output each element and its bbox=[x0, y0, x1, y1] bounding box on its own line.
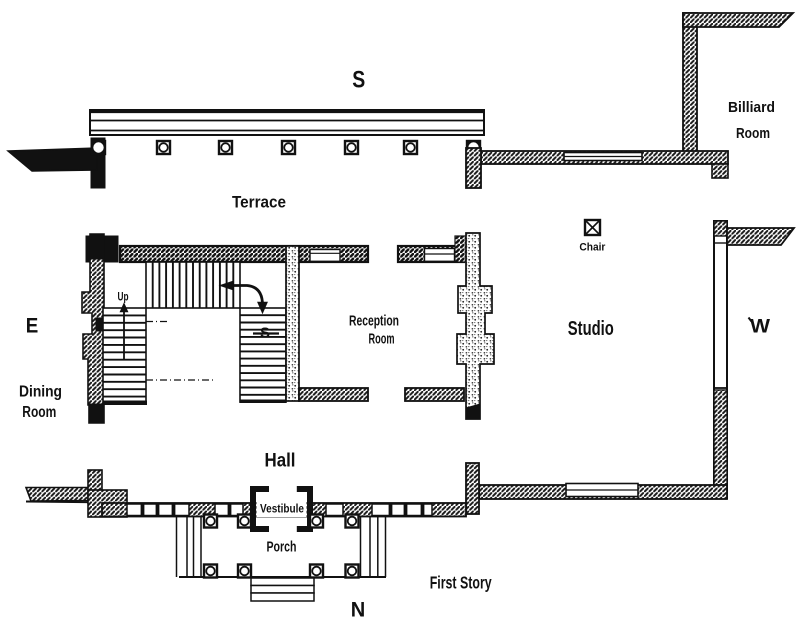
svg-text:Studio: Studio bbox=[568, 318, 614, 340]
svg-text:N: N bbox=[351, 598, 366, 622]
svg-text:Up: Up bbox=[118, 290, 129, 304]
svg-text:Reception: Reception bbox=[349, 313, 399, 330]
svg-text:Hall: Hall bbox=[265, 451, 296, 472]
svg-text:Dining: Dining bbox=[19, 384, 62, 401]
svg-text:Vestibule: Vestibule bbox=[260, 504, 304, 516]
svg-text:Terrace: Terrace bbox=[232, 193, 286, 212]
svg-text:Chair: Chair bbox=[579, 242, 606, 254]
svg-text:Billiard: Billiard bbox=[728, 99, 775, 116]
svg-text:Room: Room bbox=[22, 404, 56, 421]
svg-text:Room: Room bbox=[736, 125, 770, 142]
svg-text:Room: Room bbox=[369, 331, 395, 348]
svg-text:S: S bbox=[352, 67, 365, 94]
svg-text:Porch: Porch bbox=[267, 539, 297, 556]
svg-text:W: W bbox=[750, 316, 771, 338]
svg-text:E: E bbox=[26, 315, 39, 338]
svg-text:First Story: First Story bbox=[430, 573, 492, 593]
